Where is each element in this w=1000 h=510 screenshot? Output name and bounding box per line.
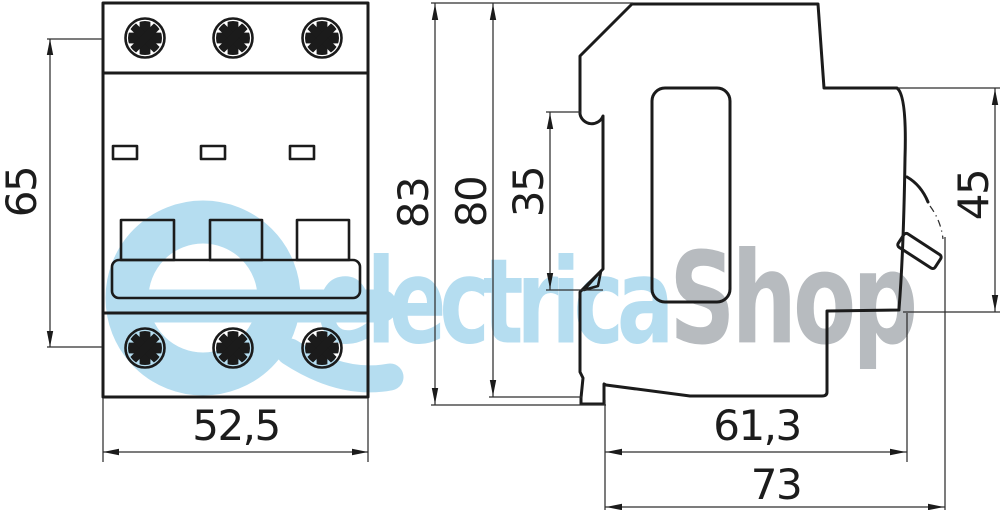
dim-label-housing-height-80: 80 <box>447 177 496 227</box>
side-toggle-handle <box>897 232 943 269</box>
dimension-45: 45 <box>898 88 1000 312</box>
dimension-52-5: 52,5 <box>103 398 368 462</box>
side-face-recess <box>652 88 730 302</box>
dimension-drawing: 65 52,5 83 80 <box>0 0 1000 510</box>
terminal-screw-icon <box>126 19 165 58</box>
dim-label-total-height-83: 83 <box>389 178 438 228</box>
side-view <box>580 4 943 404</box>
terminal-screw-icon <box>214 19 253 58</box>
front-view <box>103 3 368 397</box>
dim-label-body-depth-61-3: 61,3 <box>713 401 801 450</box>
dim-label-din-rail-35: 35 <box>504 167 553 217</box>
dimension-35: 35 <box>504 112 603 290</box>
technical-drawing-canvas: electricaShop <box>0 0 1000 510</box>
terminal-screw-icon <box>303 329 342 368</box>
terminal-screw-icon <box>214 329 253 368</box>
label-window <box>113 146 137 159</box>
dim-label-handle-45: 45 <box>949 170 998 220</box>
dim-label-total-depth-73: 73 <box>751 460 801 509</box>
toggle-lever <box>297 220 349 260</box>
din-clip-latch <box>584 271 601 290</box>
toggle-lever <box>210 220 262 260</box>
handle-travel-arc-dashed <box>930 206 943 239</box>
dimension-65: 65 <box>0 39 102 347</box>
terminal-screw-icon <box>303 19 342 58</box>
breaker-side-outline <box>580 4 905 404</box>
handle-travel-arc <box>907 177 928 202</box>
toggle-tie-bar <box>112 260 360 298</box>
dim-label-height-65: 65 <box>0 167 46 217</box>
dim-label-width-52-5: 52,5 <box>192 401 280 450</box>
toggle-lever <box>121 220 174 260</box>
label-window <box>290 146 314 159</box>
dimension-73: 73 <box>605 237 945 510</box>
label-window <box>201 146 225 159</box>
terminal-screw-icon <box>126 329 165 368</box>
